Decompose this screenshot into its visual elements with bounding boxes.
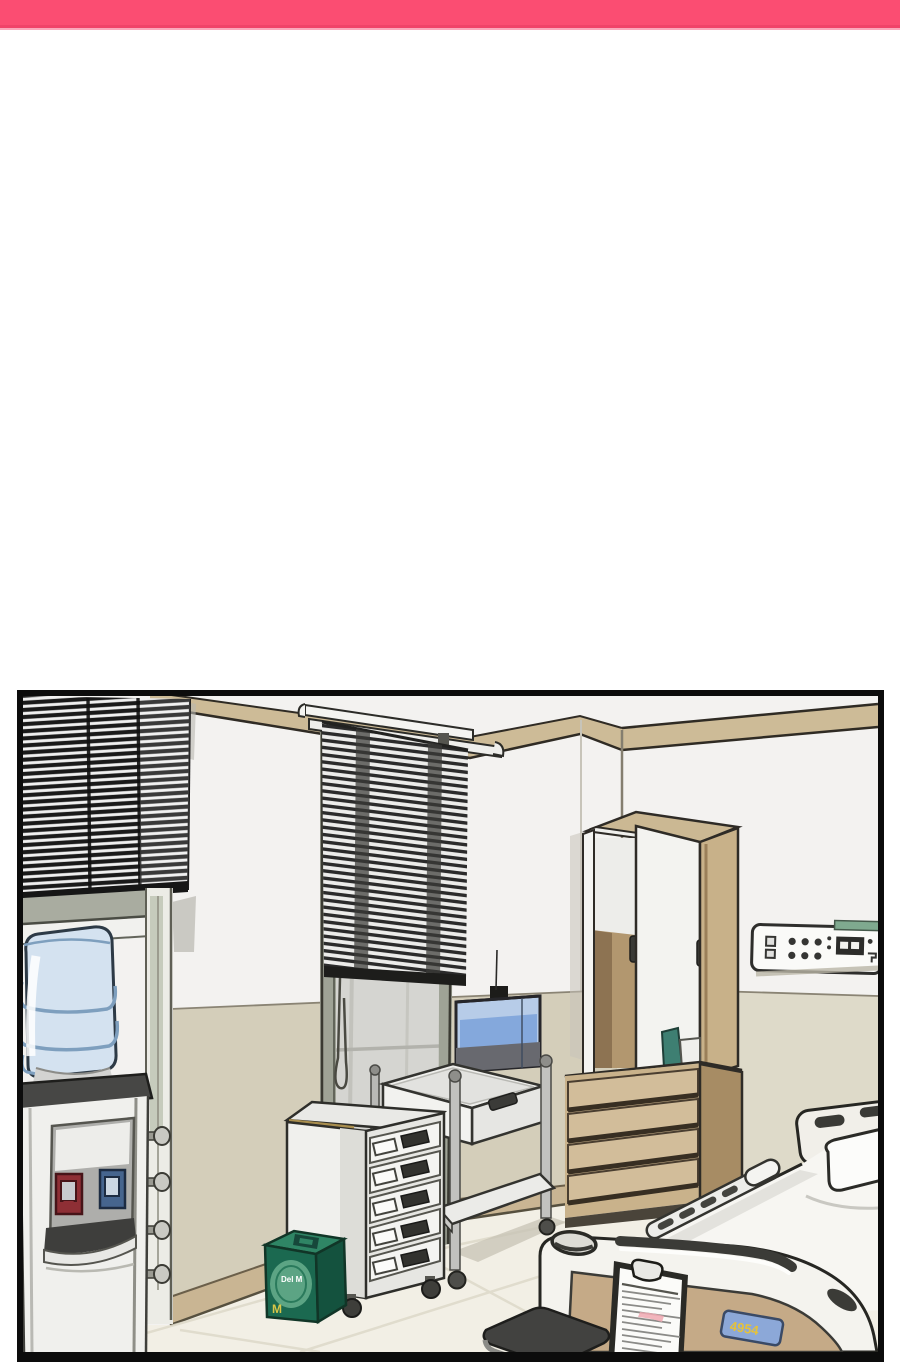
svg-text:Del M: Del M [281, 1275, 303, 1284]
svg-text:M: M [272, 1302, 282, 1316]
